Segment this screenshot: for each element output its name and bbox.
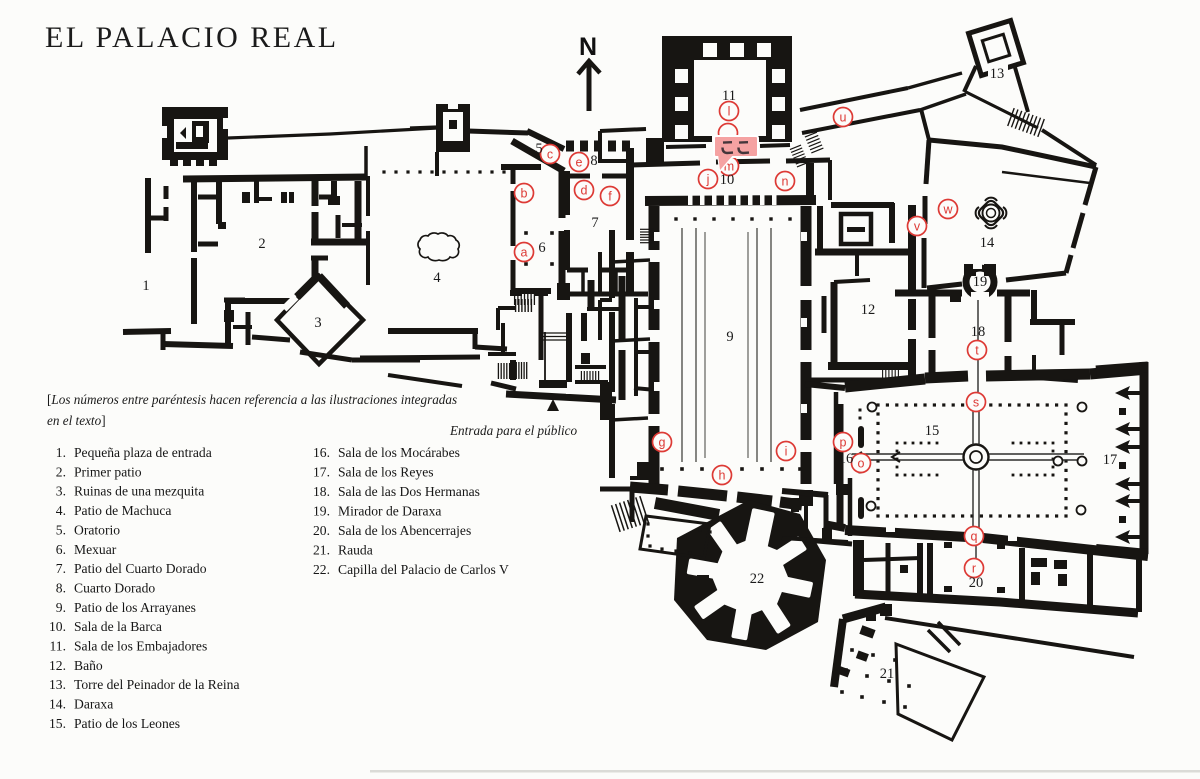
svg-text:20: 20 xyxy=(969,575,984,591)
svg-text:10.: 10. xyxy=(49,619,66,634)
svg-text:14: 14 xyxy=(980,235,995,251)
svg-text:N: N xyxy=(579,33,597,61)
svg-text:6.: 6. xyxy=(56,542,66,557)
svg-text:Sala de las Dos Hermanas: Sala de las Dos Hermanas xyxy=(338,484,480,499)
svg-text:5.: 5. xyxy=(56,522,66,537)
svg-text:15.: 15. xyxy=(49,716,66,731)
svg-text:Capilla del Palacio de Carlos: Capilla del Palacio de Carlos V xyxy=(338,562,509,577)
svg-text:b: b xyxy=(521,187,528,201)
svg-text:Patio del Cuarto Dorado: Patio del Cuarto Dorado xyxy=(74,561,207,576)
svg-text:g: g xyxy=(659,436,666,450)
svg-text:Mexuar: Mexuar xyxy=(74,542,117,557)
svg-text:Pequeña plaza de entrada: Pequeña plaza de entrada xyxy=(74,445,212,460)
svg-text:4: 4 xyxy=(433,270,441,286)
svg-text:Primer patio: Primer patio xyxy=(74,464,142,479)
svg-text:13: 13 xyxy=(990,66,1005,82)
svg-text:18: 18 xyxy=(971,324,986,340)
svg-text:17.: 17. xyxy=(313,465,330,480)
svg-text:22: 22 xyxy=(750,571,765,587)
svg-text:d: d xyxy=(581,184,588,198)
svg-text:e: e xyxy=(576,156,583,170)
svg-text:f: f xyxy=(608,190,612,204)
svg-text:12: 12 xyxy=(861,302,876,318)
svg-text:Rauda: Rauda xyxy=(338,543,373,558)
svg-text:20.: 20. xyxy=(313,523,330,538)
svg-text:Sala de la Barca: Sala de la Barca xyxy=(74,619,162,634)
svg-text:13.: 13. xyxy=(49,677,66,692)
svg-text:7.: 7. xyxy=(56,561,66,576)
svg-text:Ruinas de una mezquita: Ruinas de una mezquita xyxy=(74,484,204,499)
svg-text:s: s xyxy=(973,396,979,410)
svg-text:19: 19 xyxy=(973,274,988,290)
svg-text:v: v xyxy=(914,220,921,234)
svg-text:o: o xyxy=(858,457,865,471)
svg-text:w: w xyxy=(942,203,953,217)
svg-text:EL PALACIO REAL: EL PALACIO REAL xyxy=(45,21,339,54)
svg-text:3: 3 xyxy=(314,315,321,331)
svg-text:21: 21 xyxy=(880,666,895,682)
svg-text:c: c xyxy=(547,148,553,162)
svg-text:9: 9 xyxy=(726,329,733,345)
svg-text:6: 6 xyxy=(538,240,545,256)
svg-text:7: 7 xyxy=(591,215,598,231)
svg-text:16.: 16. xyxy=(313,445,330,460)
svg-text:Entrada para el público: Entrada para el público xyxy=(449,423,578,438)
svg-text:p: p xyxy=(840,436,847,450)
svg-text:Cuarto Dorado: Cuarto Dorado xyxy=(74,580,155,595)
svg-text:14.: 14. xyxy=(49,697,66,712)
svg-text:11: 11 xyxy=(722,88,736,104)
svg-text:Oratorio: Oratorio xyxy=(74,522,120,537)
svg-text:Daraxa: Daraxa xyxy=(74,697,113,712)
svg-text:Patio de Machuca: Patio de Machuca xyxy=(74,503,171,518)
svg-text:19.: 19. xyxy=(313,504,330,519)
svg-text:l: l xyxy=(728,105,731,119)
svg-text:1.: 1. xyxy=(56,445,66,460)
svg-text:15: 15 xyxy=(925,423,940,439)
svg-text:Sala de los Reyes: Sala de los Reyes xyxy=(338,465,434,480)
svg-text:q: q xyxy=(971,530,978,544)
svg-text:21.: 21. xyxy=(313,543,330,558)
svg-text:8: 8 xyxy=(590,153,597,169)
svg-text:8.: 8. xyxy=(56,580,66,595)
svg-text:Torre del Peinador de la Reina: Torre del Peinador de la Reina xyxy=(74,677,240,692)
svg-text:Sala de los Mocárabes: Sala de los Mocárabes xyxy=(338,445,460,460)
svg-text:Patio de los Arrayanes: Patio de los Arrayanes xyxy=(74,600,196,615)
svg-text:Sala de los Embajadores: Sala de los Embajadores xyxy=(74,639,207,654)
svg-text:[Los números entre paréntesis: [Los números entre paréntesis hacen refe… xyxy=(47,392,457,407)
svg-text:Sala de los Abencerrajes: Sala de los Abencerrajes xyxy=(338,523,471,538)
svg-text:10: 10 xyxy=(720,172,735,188)
svg-text:4.: 4. xyxy=(56,503,66,518)
svg-text:5: 5 xyxy=(535,141,542,157)
svg-text:j: j xyxy=(706,173,710,187)
svg-text:Patio de los Leones: Patio de los Leones xyxy=(74,716,180,731)
svg-text:1: 1 xyxy=(142,278,149,294)
svg-text:2: 2 xyxy=(258,236,265,252)
svg-text:9.: 9. xyxy=(56,600,66,615)
svg-text:i: i xyxy=(785,445,788,459)
svg-text:18.: 18. xyxy=(313,484,330,499)
svg-text:11.: 11. xyxy=(50,639,67,654)
svg-text:22.: 22. xyxy=(313,562,330,577)
svg-text:en el texto]: en el texto] xyxy=(47,413,106,428)
svg-text:u: u xyxy=(840,111,847,125)
svg-text:2.: 2. xyxy=(56,464,66,479)
svg-text:3.: 3. xyxy=(56,484,66,499)
svg-text:a: a xyxy=(521,246,528,260)
svg-text:Mirador de Daraxa: Mirador de Daraxa xyxy=(338,504,441,519)
svg-text:n: n xyxy=(782,175,789,189)
svg-text:t: t xyxy=(975,344,979,358)
svg-text:17: 17 xyxy=(1103,452,1118,468)
svg-text:12.: 12. xyxy=(49,658,66,673)
svg-text:h: h xyxy=(719,469,726,483)
svg-text:r: r xyxy=(972,562,976,576)
svg-text:Baño: Baño xyxy=(74,658,103,673)
svg-text:16: 16 xyxy=(839,451,854,467)
